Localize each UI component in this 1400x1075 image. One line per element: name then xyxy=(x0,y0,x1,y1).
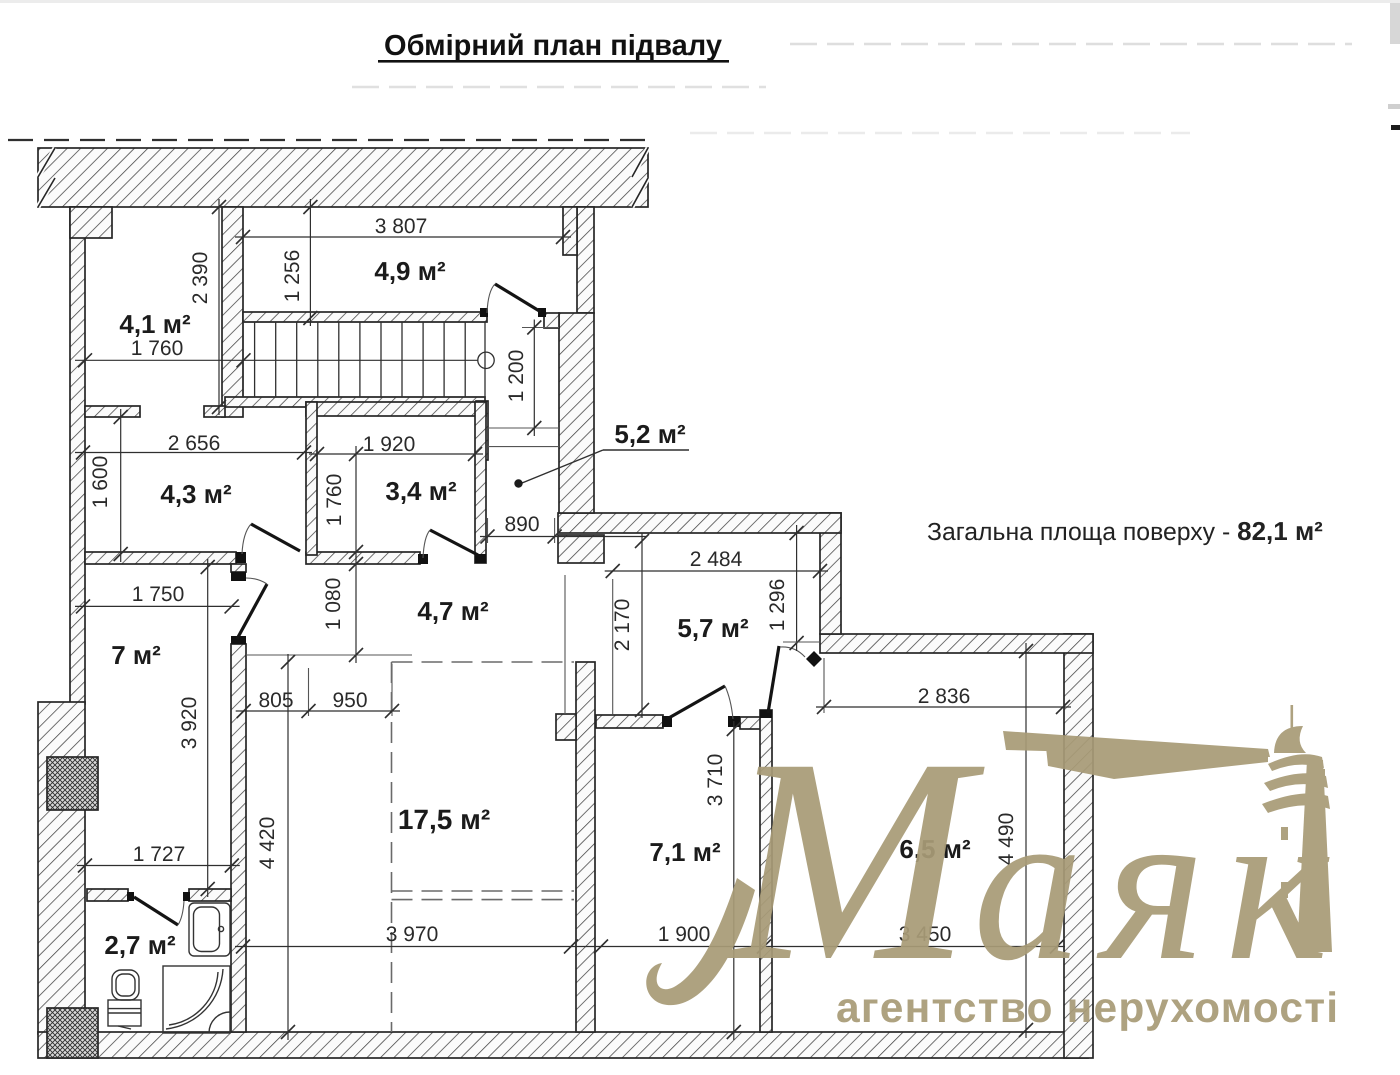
svg-text:1 296: 1 296 xyxy=(766,579,789,632)
svg-text:Загальна площа поверху - 82,1: Загальна площа поверху - 82,1 м² xyxy=(927,516,1323,546)
svg-text:4,9 м²: 4,9 м² xyxy=(374,256,446,286)
svg-text:3 970: 3 970 xyxy=(386,923,439,946)
svg-text:5,2 м²: 5,2 м² xyxy=(614,419,686,449)
svg-text:агентство нерухомості: агентство нерухомості xyxy=(836,985,1339,1032)
svg-text:1 256: 1 256 xyxy=(281,250,304,303)
svg-text:4,3 м²: 4,3 м² xyxy=(160,479,232,509)
svg-text:1 600: 1 600 xyxy=(89,456,112,509)
svg-text:17,5 м²: 17,5 м² xyxy=(398,804,490,835)
svg-text:4 420: 4 420 xyxy=(256,817,279,870)
svg-text:1 760: 1 760 xyxy=(131,337,184,360)
svg-text:4,1 м²: 4,1 м² xyxy=(119,309,191,339)
svg-text:1 750: 1 750 xyxy=(132,583,185,606)
svg-text:2 656: 2 656 xyxy=(168,432,221,455)
svg-text:1 200: 1 200 xyxy=(505,350,528,403)
svg-text:2 390: 2 390 xyxy=(189,252,212,305)
svg-text:3 807: 3 807 xyxy=(375,215,428,238)
svg-text:М: М xyxy=(723,699,988,1022)
svg-text:4,7 м²: 4,7 м² xyxy=(417,596,489,626)
svg-text:Обмірний план підвалу: Обмірний план підвалу xyxy=(384,30,722,62)
svg-text:1 080: 1 080 xyxy=(322,578,345,631)
svg-text:950: 950 xyxy=(332,689,367,712)
svg-text:3 920: 3 920 xyxy=(178,697,201,750)
svg-text:аяк: аяк xyxy=(973,762,1348,1006)
svg-text:2,7 м²: 2,7 м² xyxy=(104,930,176,960)
svg-text:7,1 м²: 7,1 м² xyxy=(649,837,721,867)
svg-text:890: 890 xyxy=(504,513,539,536)
svg-text:3,4 м²: 3,4 м² xyxy=(385,476,457,506)
svg-text:7 м²: 7 м² xyxy=(111,640,161,670)
svg-text:5,7 м²: 5,7 м² xyxy=(677,613,749,643)
svg-text:1 727: 1 727 xyxy=(133,843,186,866)
svg-text:2 484: 2 484 xyxy=(690,548,743,571)
svg-text:1 900: 1 900 xyxy=(658,923,711,946)
svg-text:3 710: 3 710 xyxy=(704,754,727,807)
svg-text:1 920: 1 920 xyxy=(363,433,416,456)
svg-text:1 760: 1 760 xyxy=(323,474,346,527)
svg-text:2 170: 2 170 xyxy=(611,599,634,652)
